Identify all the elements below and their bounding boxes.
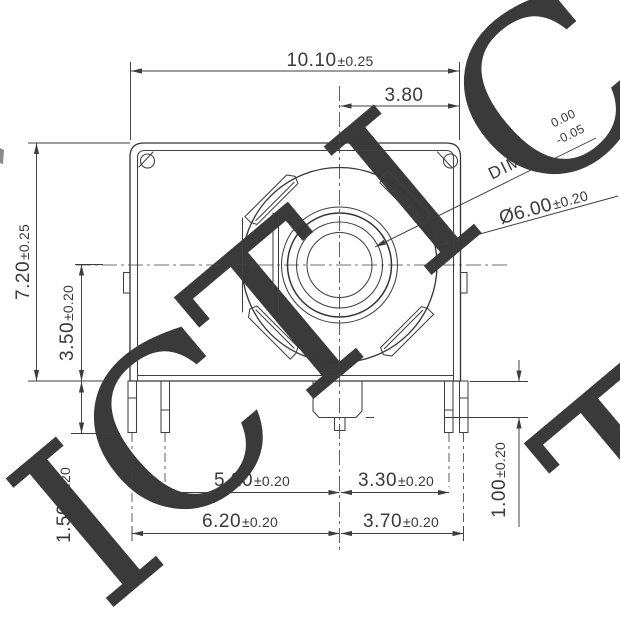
dim-text-pitch-left: 5.20±0.20 bbox=[214, 470, 290, 491]
dim-text-top-offset: 3.80 bbox=[385, 85, 424, 106]
arrowhead-left bbox=[131, 68, 142, 73]
arrowhead-left bbox=[341, 531, 352, 536]
side-boss-left bbox=[124, 273, 131, 294]
connector-drawing: C I T C I T bbox=[0, 0, 620, 620]
arrowhead-right bbox=[453, 531, 464, 536]
tic-watermark: C I T C I T bbox=[0, 0, 620, 620]
arrowhead-right bbox=[329, 531, 340, 536]
dim-text-top-width: 10.10±0.25 bbox=[287, 50, 374, 71]
dim-text-center-to-base: 3.50±0.20 bbox=[57, 285, 78, 361]
dim-text-left-height: 7.20±0.25 bbox=[13, 224, 34, 300]
dim-text-span-left: 6.20±0.20 bbox=[202, 511, 278, 532]
arrowhead-top bbox=[34, 143, 39, 154]
arrowhead-left bbox=[341, 490, 352, 495]
dim-pitch-right: 3.30±0.20 bbox=[341, 470, 449, 495]
arrowhead-top bbox=[79, 265, 84, 276]
corner-post-left bbox=[141, 154, 155, 168]
pin-right-inner bbox=[445, 381, 454, 433]
arrowhead-right bbox=[438, 490, 449, 495]
dim-span-right: 3.70±0.20 bbox=[341, 511, 464, 541]
dim-text-pitch-right: 3.30±0.20 bbox=[358, 470, 434, 491]
arrowhead-right bbox=[329, 490, 340, 495]
pin-right-outer bbox=[460, 381, 469, 433]
dim-text-pin-length: 1.50±0.20 bbox=[54, 467, 75, 543]
technical-drawing-page: C I T C I T bbox=[0, 0, 620, 620]
watermark-letter-t-bottom-right: T bbox=[494, 312, 620, 615]
dim-text-span-right: 3.70±0.20 bbox=[363, 511, 439, 532]
dim-text-tab-height: 1.00±0.20 bbox=[489, 442, 510, 518]
arrowhead-down bbox=[516, 371, 521, 382]
watermark-fragment-left-edge bbox=[0, 148, 4, 164]
